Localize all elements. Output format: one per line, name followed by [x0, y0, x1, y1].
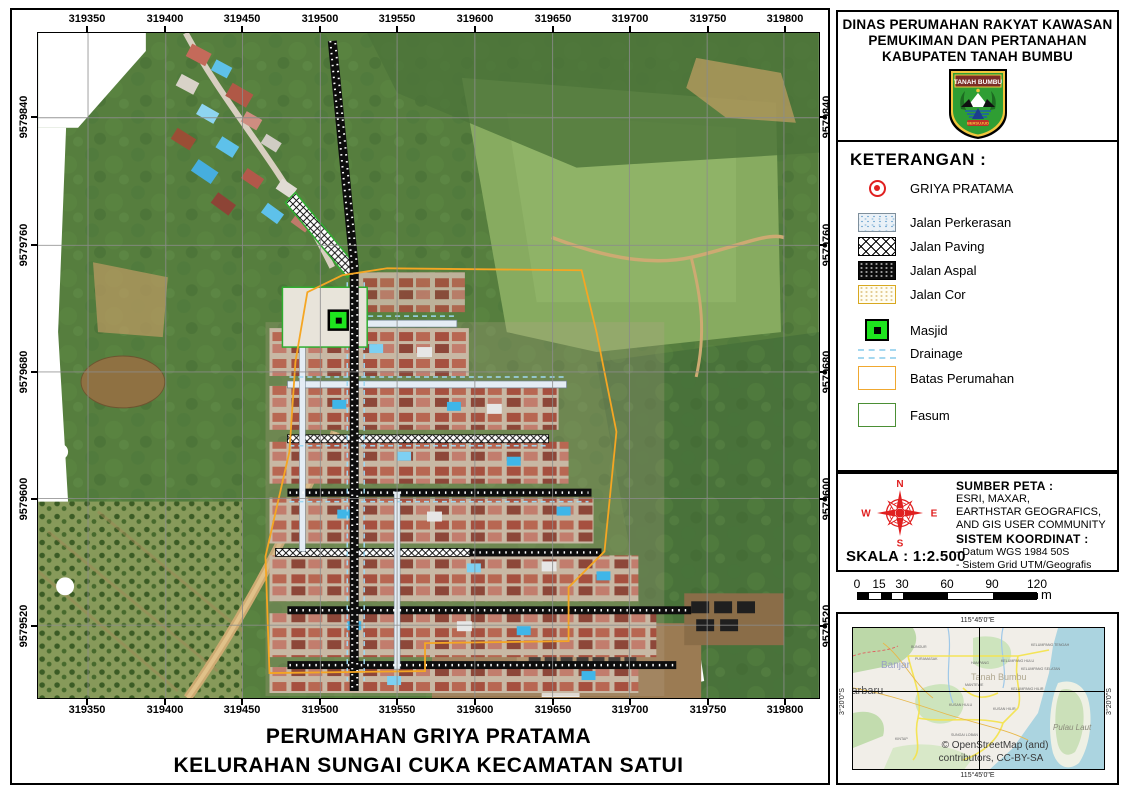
sumber-peta-heading: SUMBER PETA :: [956, 479, 1116, 493]
axis-label: 319700: [612, 13, 649, 25]
tick-mark: [820, 116, 826, 118]
crest-motto-text: BERSUJUD: [966, 121, 988, 126]
compass-n: N: [896, 479, 903, 490]
axis-label: 319800: [767, 13, 804, 25]
axis-label: 319450: [224, 13, 261, 25]
inset-crosshair-horizontal: [853, 691, 1105, 692]
scalebar-graphic: [857, 592, 1037, 600]
scalebar-tick: 0: [854, 577, 861, 591]
batas-swatch-icon: [858, 366, 896, 390]
legend-label: Fasum: [910, 408, 950, 423]
legend-item-jalan-perkerasan: Jalan Perkerasan: [850, 213, 1117, 232]
scalebar-unit: m: [1041, 587, 1052, 602]
axis-label: 319350: [69, 704, 106, 716]
tick-mark: [629, 699, 631, 705]
axis-label: 319400: [147, 13, 184, 25]
axis-label: 9579600: [18, 478, 30, 521]
inset-latitude-right: 3°20'0"S: [1106, 688, 1113, 715]
source-line: ESRI, MAXAR,: [956, 493, 1116, 506]
tick-mark: [820, 244, 826, 246]
axis-label: 9579680: [18, 351, 30, 394]
inset-district: SUNGAI LOBAN: [951, 733, 978, 737]
axis-label: 9579840: [18, 96, 30, 139]
legend-item-jalan-aspal: Jalan Aspal: [850, 261, 1117, 280]
agency-title-line2: PEMUKIMAN DAN PERTANAHAN: [838, 33, 1117, 49]
aerial-orthophoto: [38, 33, 819, 698]
osm-credit-line2: contributors, CC-BY-SA: [939, 753, 1044, 764]
axis-label: 319550: [379, 13, 416, 25]
legend-title: KETERANGAN :: [850, 150, 1117, 170]
source-info: SUMBER PETA : ESRI, MAXAR, EARTHSTAR GEO…: [956, 479, 1116, 571]
source-line: EARTHSTAR GEOGRAFICS,: [956, 506, 1116, 519]
legend-label: GRIYA PRATAMA: [910, 181, 1013, 196]
axis-label: 319500: [302, 13, 339, 25]
sistem-koordinat-heading: SISTEM KOORDINAT :: [956, 532, 1116, 546]
coord-line: - Datum WGS 1984 50S: [956, 546, 1116, 559]
axis-label: 319750: [690, 704, 727, 716]
axis-label: 319650: [535, 13, 572, 25]
inset-osm-map: Banjar jarbaru Tanah Bumbu Pulau Laut BU…: [852, 627, 1105, 770]
compass-e: E: [931, 509, 938, 520]
aspal-swatch-icon: [858, 261, 896, 280]
inset-crosshair-vertical: [979, 628, 980, 770]
inset-district: HAMPANG: [971, 661, 989, 665]
agency-header-box: DINAS PERUMAHAN RAKYAT KAWASAN PEMUKIMAN…: [836, 10, 1119, 142]
axis-label: 319500: [302, 704, 339, 716]
inset-locator-box: 115°45'0"E 115°45'0"E 3°20'0"S 3°20'0"S: [836, 612, 1119, 785]
tick-mark: [707, 699, 709, 705]
axis-label: 319700: [612, 704, 649, 716]
axis-label: 319350: [69, 13, 106, 25]
agency-title-line3: KABUPATEN TANAH BUMBU: [838, 49, 1117, 65]
coord-line: - Sistem Grid UTM/Geografis: [956, 559, 1116, 572]
perkerasan-swatch-icon: [858, 213, 896, 232]
legend-label: Jalan Cor: [910, 287, 966, 302]
tanah-bumbu-crest: TANAH BUMBU BERSUJUD: [947, 67, 1009, 141]
inset-place-banjar: Banjar: [881, 660, 911, 671]
axis-label: 319600: [457, 13, 494, 25]
source-line: AND GIS USER COMMUNITY: [956, 519, 1116, 532]
legend-label: Jalan Perkerasan: [910, 215, 1011, 230]
tick-mark: [820, 498, 826, 500]
tick-mark: [820, 625, 826, 627]
axis-label: 319550: [379, 704, 416, 716]
inset-district: KELUMPANG TENGAH: [1031, 643, 1070, 647]
tick-mark: [86, 699, 88, 705]
compass-w: W: [861, 509, 871, 520]
cor-swatch-icon: [858, 285, 896, 304]
scale-text: SKALA : 1:2.500: [846, 548, 966, 565]
inset-district: PURAMASAK: [915, 657, 938, 661]
map-frame: [37, 32, 820, 699]
scalebar-tick: 15: [872, 577, 885, 591]
tick-mark: [164, 699, 166, 705]
osm-credit-line1: © OpenStreetMap (and): [942, 740, 1049, 751]
legend-item-jalan-cor: Jalan Cor: [850, 285, 1117, 304]
crest-banner-text: TANAH BUMBU: [953, 79, 1002, 86]
scalebar-tick: 90: [985, 577, 998, 591]
point-marker-icon: [858, 176, 896, 200]
tick-mark: [784, 699, 786, 705]
tick-mark: [396, 699, 398, 705]
legend-item-drainage: Drainage: [850, 346, 1117, 361]
legend-item-jalan-paving: Jalan Paving: [850, 237, 1117, 256]
legend-label: Drainage: [910, 346, 963, 361]
map-sheet: { "header": { "title_lines": ["DINAS PER…: [0, 0, 1123, 793]
scalebar-tick: 30: [895, 577, 908, 591]
inset-longitude-bottom: 115°45'0"E: [960, 772, 994, 779]
paving-swatch-icon: [858, 237, 896, 256]
drainage-swatch-icon: [858, 349, 896, 359]
inset-district: BUNGUR: [911, 645, 927, 649]
masjid-swatch-icon: [865, 319, 889, 341]
legend-label: Jalan Paving: [910, 239, 984, 254]
map-title-line1: PERUMAHAN GRIYA PRATAMA: [37, 722, 820, 751]
legend-label: Masjid: [910, 323, 948, 338]
legend-label: Batas Perumahan: [910, 371, 1014, 386]
tick-mark: [319, 699, 321, 705]
inset-district: KUSAN HULU: [949, 703, 973, 707]
tick-mark: [552, 699, 554, 705]
scalebar-tick: 60: [940, 577, 953, 591]
agency-title-line1: DINAS PERUMAHAN RAKYAT KAWASAN: [838, 17, 1117, 33]
map-title-line2: KELURAHAN SUNGAI CUKA KECAMATAN SATUI: [37, 751, 820, 780]
compass-source-box: N S W E SKALA : 1:2.500 SUMBER PETA : ES: [836, 472, 1119, 572]
inset-latitude-left: 3°20'0"S: [839, 688, 846, 715]
fasum-swatch-icon: [858, 403, 896, 427]
inset-district: MANTEWE: [965, 683, 984, 687]
legend-item-griya-pratama: GRIYA PRATAMA: [850, 176, 1117, 200]
compass-rose-icon: N S W E: [852, 476, 948, 550]
axis-label: 319450: [224, 704, 261, 716]
scale-bar: 0 15 30 60 90 120 m: [845, 577, 1060, 611]
axis-label: 319750: [690, 13, 727, 25]
axis-label: 319800: [767, 704, 804, 716]
map-compartment: 319350 319400 319450 319500 319550 31960…: [10, 8, 830, 785]
map-title: PERUMAHAN GRIYA PRATAMA KELURAHAN SUNGAI…: [37, 722, 820, 780]
tick-mark: [474, 699, 476, 705]
axis-label: 319400: [147, 704, 184, 716]
axis-label: 319650: [535, 704, 572, 716]
axis-label: 9579760: [18, 224, 30, 267]
tick-mark: [820, 371, 826, 373]
legend-label: Jalan Aspal: [910, 263, 977, 278]
legend-item-batas-perumahan: Batas Perumahan: [850, 366, 1117, 390]
legend-item-fasum: Fasum: [850, 403, 1117, 427]
inset-longitude-top: 115°45'0"E: [960, 617, 994, 624]
inset-place-pulau-laut: Pulau Laut: [1053, 723, 1092, 732]
tick-mark: [241, 699, 243, 705]
inset-district: KELUMPANG HULU: [1001, 659, 1034, 663]
legend-item-masjid: Masjid: [850, 319, 1117, 341]
axis-label: 9579520: [18, 605, 30, 648]
masjid-marker: [329, 311, 348, 330]
inset-district: KELUMPANG SELATAN: [1021, 667, 1061, 671]
legend-box: KETERANGAN : GRIYA PRATAMA Jalan Perkera…: [836, 140, 1119, 472]
axis-label: 319600: [457, 704, 494, 716]
inset-district: KINTAP: [895, 737, 908, 741]
inset-district: KUSAN HILIR: [993, 707, 1016, 711]
